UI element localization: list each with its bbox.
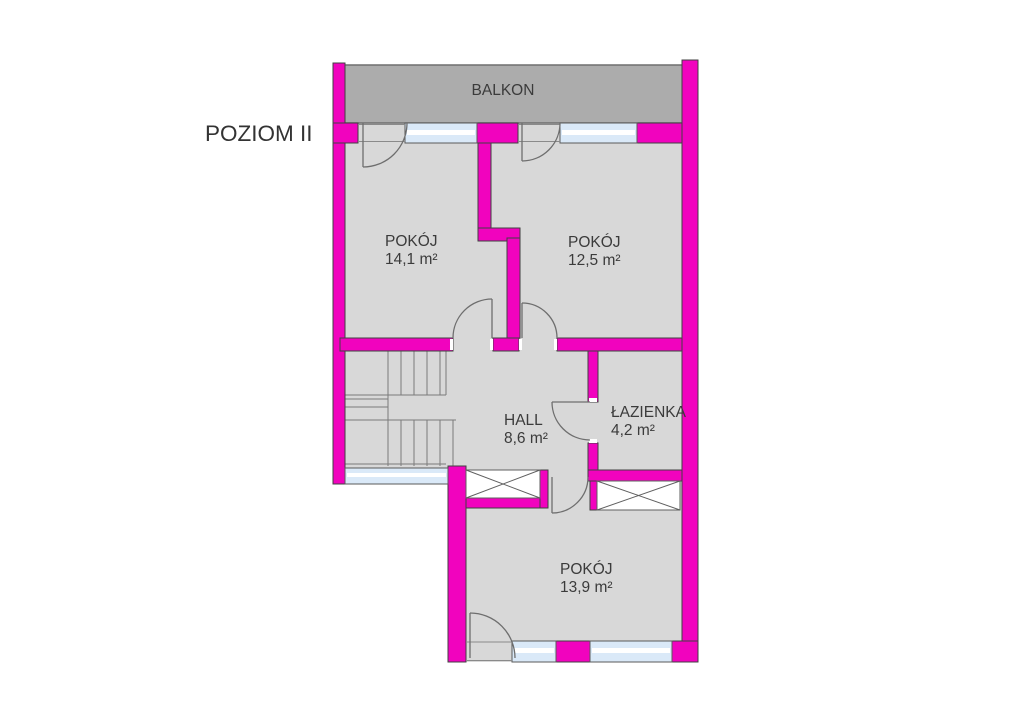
wall-bottom-pier (556, 641, 590, 662)
wall-room3-left (448, 466, 466, 662)
wall-hall-bottom (588, 470, 682, 481)
floor-plan: POZIOM II BALKON POKÓJ 14,1 m² POKÓJ 12,… (0, 0, 1024, 724)
wall-closet-stub (540, 470, 548, 508)
wall-hall-pier (493, 338, 519, 351)
room1-area: 14,1 m² (385, 251, 438, 268)
wall-center-upper (478, 143, 491, 233)
room3-name: POKÓJ (560, 561, 613, 578)
room2-name: POKÓJ (568, 234, 621, 251)
room2-area: 12,5 m² (568, 252, 621, 269)
wall-center-lower (507, 238, 520, 338)
floor-plan-canvas: POZIOM II BALKON POKÓJ 14,1 m² POKÓJ 12,… (0, 0, 1024, 724)
wall-bath-upper (588, 351, 598, 402)
room1-name: POKÓJ (385, 233, 438, 250)
wall-closet2-stub (590, 481, 597, 510)
wall-bottom-corner (672, 641, 698, 662)
wall-top-pier-2 (477, 123, 518, 143)
page-title: POZIOM II (205, 121, 313, 146)
wall-closet-bottom (466, 498, 548, 508)
hall-name: HALL (504, 412, 543, 429)
room3-area: 13,9 m² (560, 579, 613, 596)
hall-area: 8,6 m² (504, 430, 548, 447)
wall-right (682, 60, 698, 662)
balcony-label: BALKON (472, 82, 535, 99)
wall-top-pier-1 (333, 123, 358, 143)
wall-hall-left (340, 338, 453, 351)
wall-top-pier-3 (637, 123, 682, 143)
wall-bath-lower (588, 443, 598, 473)
bathroom-area: 4,2 m² (611, 422, 655, 439)
wall-hall-right (557, 338, 682, 351)
floors (340, 123, 682, 662)
bathroom-name: ŁAZIENKA (611, 404, 687, 421)
